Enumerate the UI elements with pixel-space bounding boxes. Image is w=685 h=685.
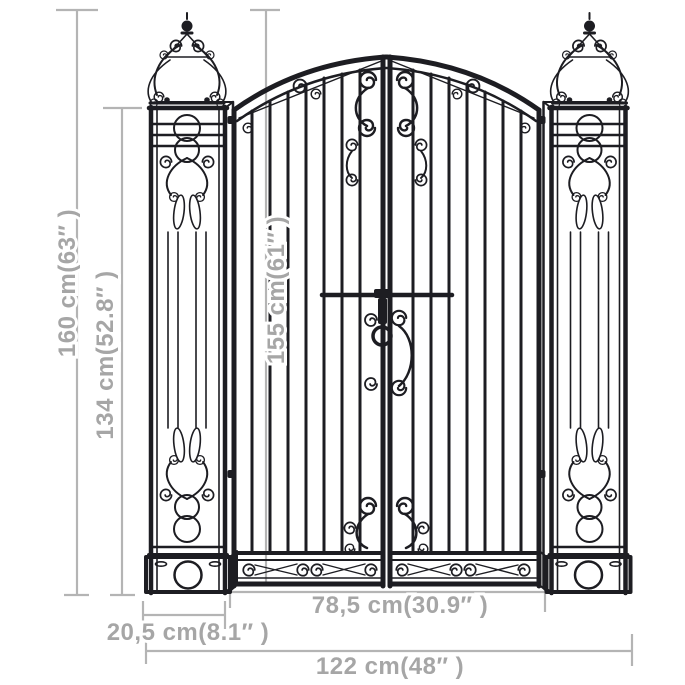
dim-label-pillar-width: 20,5 cm(8.1″ ): [107, 619, 270, 646]
latch-clamp: [374, 289, 390, 298]
lock-body: [378, 298, 387, 324]
dim-label-gate-width: 78,5 cm(30.9″ ): [312, 592, 488, 619]
pillar-finial: [148, 13, 226, 107]
diagram-canvas: 160 cm(63″ ) 134 cm(52.8″ ) 155 cm(61″ )…: [0, 0, 685, 685]
hinge: [228, 116, 236, 124]
product-dimension-diagram: 160 cm(63″ ) 134 cm(52.8″ ) 155 cm(61″ )…: [0, 0, 685, 685]
pillar-inner-bars: [168, 232, 206, 428]
gate-right-leaf: [387, 57, 546, 586]
hinge: [228, 470, 236, 478]
pillar-scrollwork: [160, 115, 213, 229]
garden-gate-illustration: [146, 13, 631, 593]
gate-left-leaf: [228, 57, 387, 586]
dim-label-gate-height: 155 cm(61″ ): [263, 216, 290, 364]
leaf-bottom-panel: [236, 553, 382, 584]
dim-label-frame-height: 134 cm(52.8″ ): [92, 270, 119, 439]
dim-label-total-height: 160 cm(63″ ): [54, 209, 81, 357]
dim-label-total-width: 122 cm(48″ ): [316, 653, 464, 680]
pillar-scrollwork-bottom: [160, 428, 213, 542]
left-pillar: [146, 13, 237, 593]
right-pillar: [540, 13, 631, 593]
